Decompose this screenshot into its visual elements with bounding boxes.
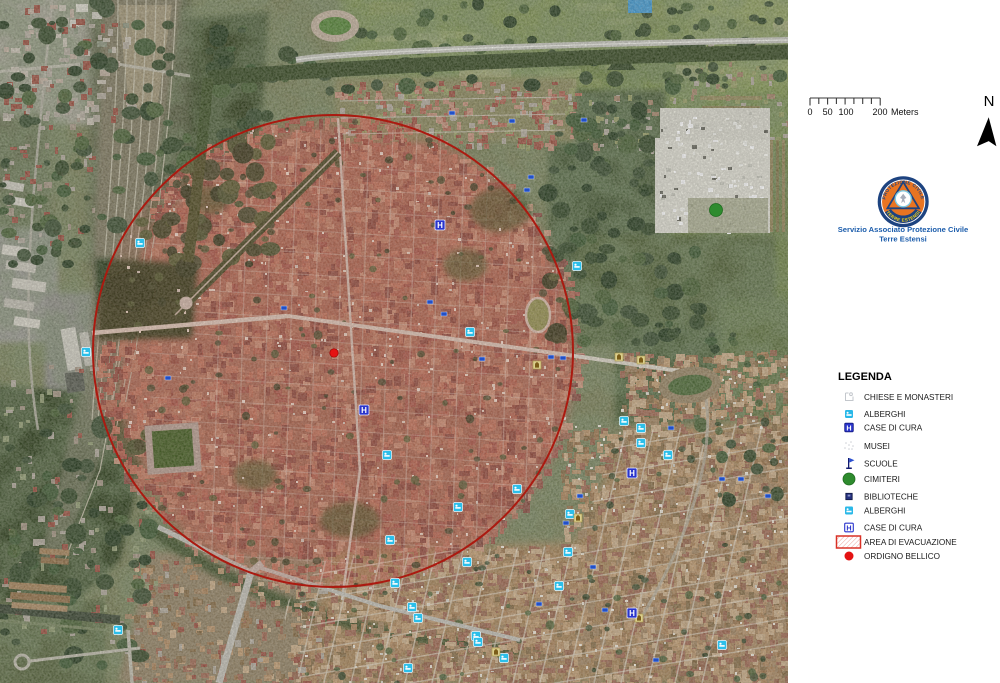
svg-text:Meters: Meters [891, 107, 919, 117]
svg-text:H: H [629, 609, 635, 618]
svg-text:SCUOLE: SCUOLE [864, 460, 898, 469]
svg-text:H: H [846, 423, 851, 432]
svg-text:50: 50 [823, 107, 833, 117]
svg-text:H: H [361, 406, 367, 415]
svg-text:ALBERGHI: ALBERGHI [864, 410, 905, 419]
svg-text:AREA DI EVACUAZIONE: AREA DI EVACUAZIONE [864, 538, 957, 547]
svg-text:CASE DI CURA: CASE DI CURA [864, 524, 923, 533]
svg-text:ORDIGNO BELLICO: ORDIGNO BELLICO [864, 552, 940, 561]
svg-text:ALBERGHI: ALBERGHI [864, 507, 905, 516]
svg-text:H: H [629, 469, 635, 478]
svg-text:Terre Estensi: Terre Estensi [879, 235, 927, 244]
svg-text:Servizio Associato Protezione: Servizio Associato Protezione Civile [838, 225, 969, 234]
svg-text:H: H [437, 221, 443, 230]
svg-text:CASE DI CURA: CASE DI CURA [864, 424, 923, 433]
svg-text:BIBLIOTECHE: BIBLIOTECHE [864, 493, 919, 502]
svg-text:N: N [984, 93, 995, 110]
svg-text:0: 0 [807, 107, 812, 117]
svg-text:CHIESE E MONASTERI: CHIESE E MONASTERI [864, 393, 953, 402]
svg-text:200: 200 [872, 107, 887, 117]
svg-text:MUSEI: MUSEI [864, 442, 890, 451]
svg-text:LEGENDA: LEGENDA [838, 371, 892, 383]
svg-text:H: H [846, 523, 851, 532]
svg-text:100: 100 [838, 107, 853, 117]
svg-text:CIMITERI: CIMITERI [864, 475, 900, 484]
